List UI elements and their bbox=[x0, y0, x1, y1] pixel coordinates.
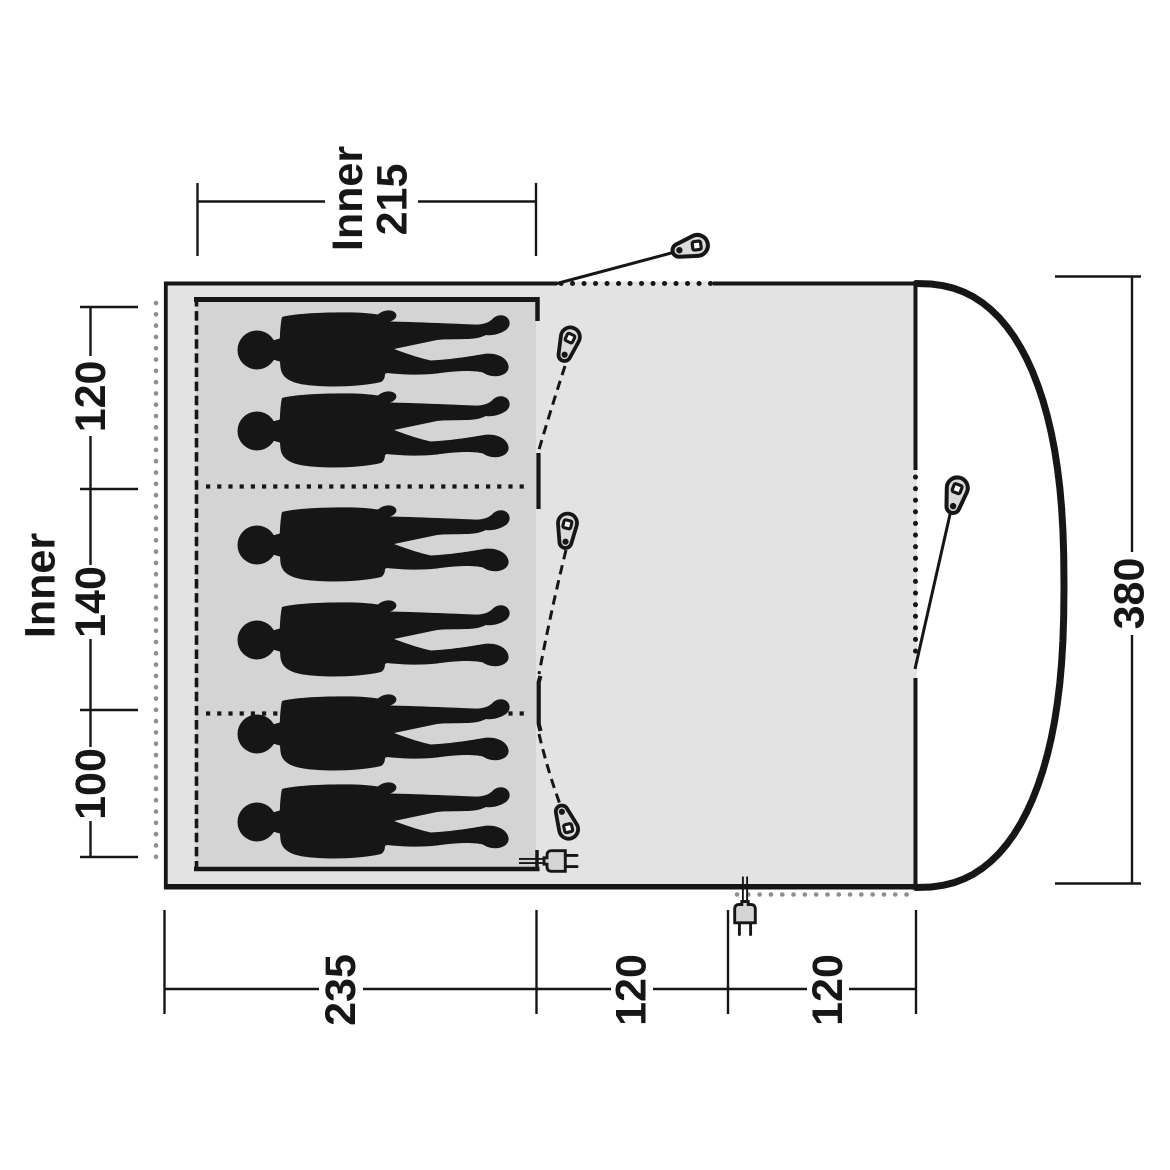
svg-text:215: 215 bbox=[369, 164, 417, 236]
svg-text:Inner: Inner bbox=[17, 533, 65, 638]
svg-text:120: 120 bbox=[608, 954, 656, 1026]
svg-text:235: 235 bbox=[317, 954, 365, 1026]
svg-text:120: 120 bbox=[804, 954, 852, 1026]
svg-text:100: 100 bbox=[67, 748, 115, 820]
svg-text:140: 140 bbox=[67, 566, 115, 638]
svg-text:Inner: Inner bbox=[324, 146, 372, 251]
svg-text:120: 120 bbox=[67, 361, 115, 433]
svg-text:380: 380 bbox=[1106, 558, 1154, 630]
